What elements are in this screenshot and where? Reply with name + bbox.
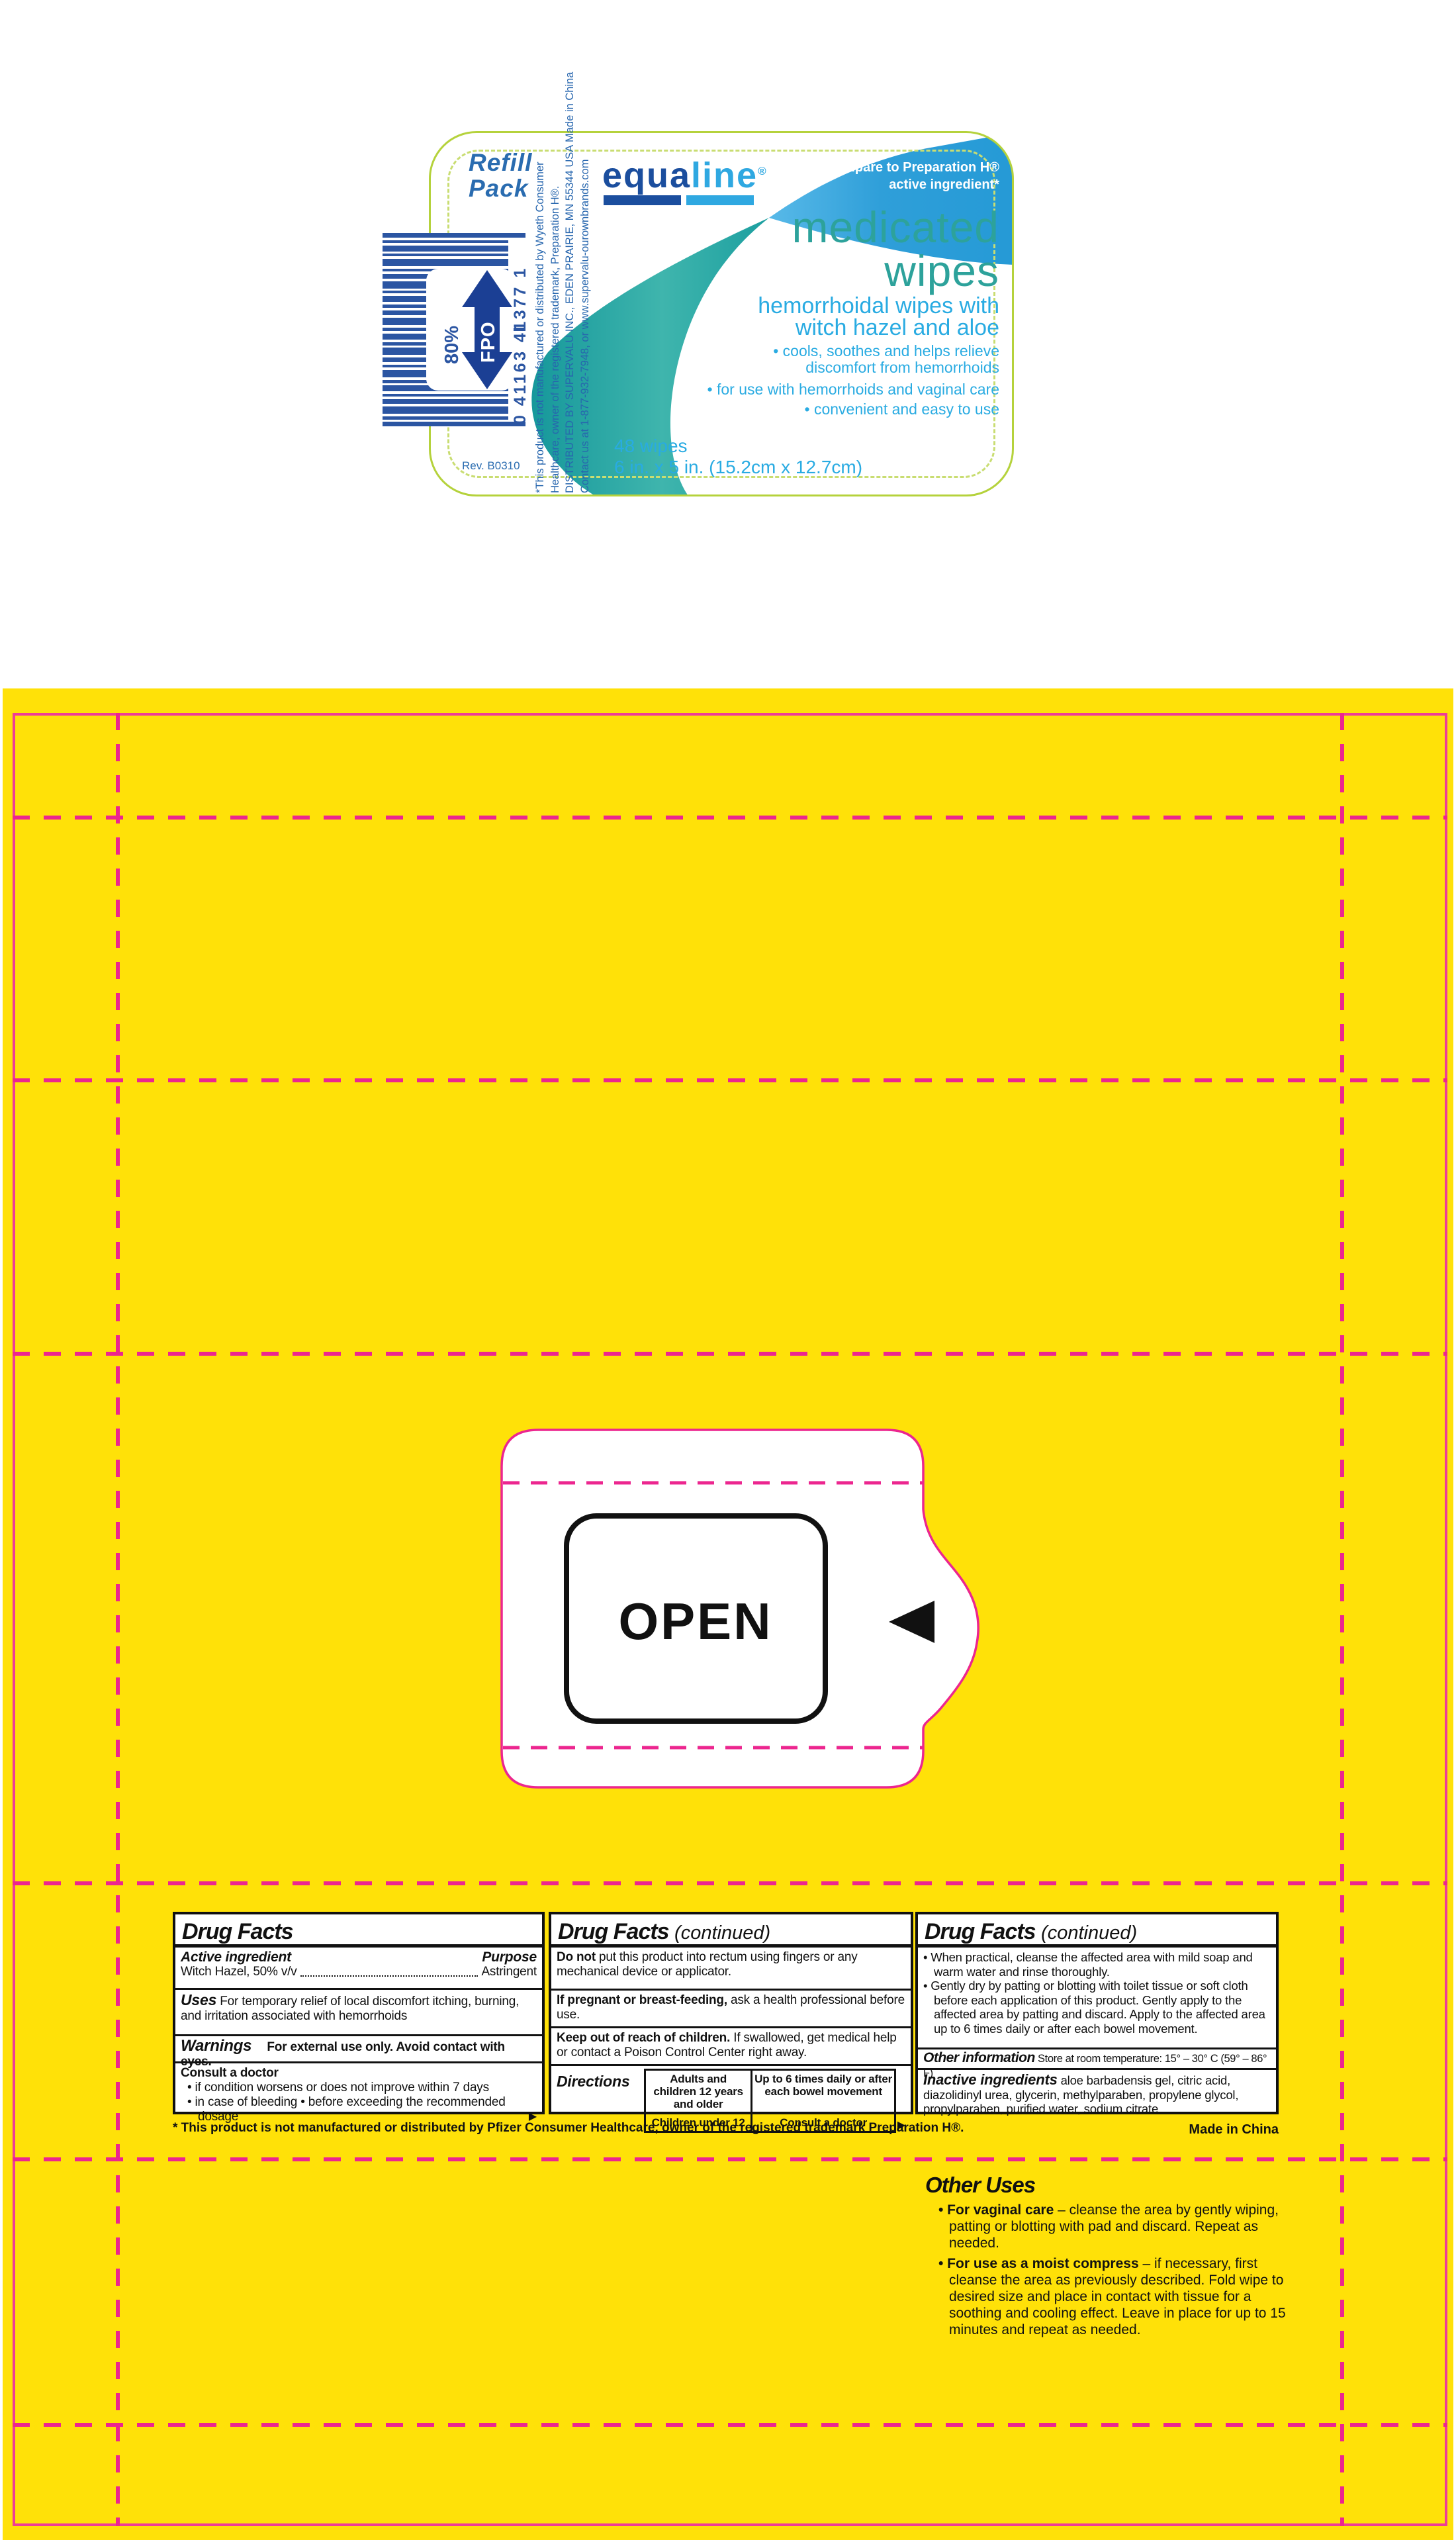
consult-bullet-1: • if condition worsens or does not impro… — [187, 2081, 537, 2095]
brand-underline-dark — [604, 195, 681, 205]
product-title: medicated wipes — [792, 205, 999, 293]
purpose-head: Purpose — [482, 1950, 537, 1965]
product-title-line2: wipes — [792, 249, 999, 293]
active-ingredient-name: Witch Hazel, 50% v/v — [181, 1965, 297, 1979]
warnings-section: Warnings For external use only. Avoid co… — [175, 2036, 542, 2063]
inactive-ingredients-head: Inactive ingredients — [923, 2071, 1058, 2088]
brand-part2: line — [691, 156, 758, 195]
directions-head: Directions — [557, 2069, 644, 2089]
pfizer-footnote: * This product is not manufactured or di… — [173, 2121, 964, 2136]
lid-label: Refill Pack equaline® compare to Prepara… — [429, 131, 1014, 496]
purpose-value: Astringent — [481, 1965, 537, 1979]
directions-row-1: Adults and children 12 years and older U… — [646, 2071, 894, 2114]
benefit-bullet-3: • convenient and easy to use — [805, 401, 999, 417]
compare-line2: active ingredient* — [828, 176, 999, 193]
pregnant-head: If pregnant or breast-feeding, — [557, 1993, 727, 2007]
uses-section: Uses For temporary relief of local disco… — [175, 1990, 542, 2036]
title-text: Drug Facts — [558, 1919, 669, 1944]
benefit-bullet-1a: • cools, soothes and helps relieve — [773, 343, 999, 359]
consult-head: Consult a doctor — [181, 2066, 537, 2081]
brand-underline-light — [686, 195, 754, 205]
pregnant-section: If pregnant or breast-feeding, ask a hea… — [551, 1991, 911, 2028]
other-uses-bullet-1: • For vaginal care – cleanse the area by… — [925, 2202, 1286, 2251]
subtitle-line1: hemorrhoidal wipes with — [758, 295, 999, 317]
barcode-percent: 80% — [441, 326, 463, 364]
drug-facts-panel-3: Drug Facts (continued) • When practical,… — [915, 1912, 1279, 2114]
keep-out-head: Keep out of reach of children. — [557, 2031, 730, 2045]
continued-text: (continued) — [674, 1922, 770, 1944]
vertical-line4: Contact us at 1-877-932-7948, or www.sup… — [578, 139, 593, 493]
fold-line-vertical-left — [116, 713, 120, 2526]
fold-line-4 — [13, 1881, 1447, 1885]
product-subtitle: hemorrhoidal wipes with witch hazel and … — [758, 295, 999, 339]
drug-facts-title-2: Drug Facts (continued) — [551, 1914, 911, 1948]
brand-logo: equaline® — [602, 154, 768, 193]
inactive-ingredients-section: Inactive ingredients aloe barbadensis ge… — [918, 2070, 1276, 2119]
application-steps-section: • When practical, cleanse the affected a… — [918, 1948, 1276, 2049]
fold-line-3 — [13, 1352, 1447, 1356]
warnings-head: Warnings — [181, 2037, 251, 2055]
wipe-size: 6 in. x 5 in. (15.2cm x 12.7cm) — [614, 457, 862, 478]
other-uses-b1-head: • For vaginal care — [938, 2202, 1054, 2218]
compare-line1: compare to Preparation H® — [828, 159, 999, 176]
fold-line-5 — [13, 2157, 1447, 2161]
application-bullet-1: • When practical, cleanse the affected a… — [923, 1950, 1271, 1979]
uses-text: For temporary relief of local discomfort… — [181, 1995, 519, 2023]
drug-facts-title-1: Drug Facts — [175, 1914, 542, 1948]
fold-line-6 — [13, 2423, 1447, 2427]
product-title-line1: medicated — [792, 205, 999, 249]
open-flap: OPEN — [470, 1397, 993, 1827]
consult-bullet-2: • in case of bleeding • before exceeding… — [187, 2095, 516, 2124]
barcode-svg: FPO 80% 0 41163 41377 1 — [383, 233, 529, 426]
directions-cell: Up to 6 times daily or after each bowel … — [752, 2071, 894, 2112]
uses-head: Uses — [181, 1991, 216, 2008]
other-uses-b2-head: • For use as a moist compress — [938, 2256, 1139, 2271]
title-text: Drug Facts — [925, 1919, 1036, 1944]
compare-claim: compare to Preparation H® active ingredi… — [828, 159, 999, 193]
made-in-china: Made in China — [915, 2122, 1279, 2138]
barcode-digits: 0 41163 41377 1 — [511, 266, 529, 424]
other-uses-bullet-2: • For use as a moist compress – if neces… — [925, 2255, 1286, 2338]
wipe-count: 48 wipes — [614, 436, 688, 457]
dotted-leader — [300, 1975, 478, 1977]
benefit-bullet-2: • for use with hemorrhoids and vaginal c… — [707, 381, 999, 397]
continued-text: (continued) — [1041, 1922, 1137, 1944]
fold-line-vertical-right — [1340, 713, 1344, 2526]
other-uses-title: Other Uses — [925, 2173, 1286, 2198]
application-bullet-2: • Gently dry by patting or blotting with… — [923, 1979, 1271, 2036]
drug-facts-panel-2: Drug Facts (continued) Do not put this p… — [549, 1912, 913, 2114]
vertical-line2: Healthcare, owner of the registered trad… — [548, 139, 563, 493]
do-not-section: Do not put this product into rectum usin… — [551, 1948, 911, 1991]
upc-barcode: FPO 80% 0 41163 41377 1 — [383, 233, 529, 426]
do-not-head: Do not — [557, 1950, 596, 1964]
active-ingredient-section: Active ingredient Purpose Witch Hazel, 5… — [175, 1948, 542, 1990]
benefit-bullet-1b: discomfort from hemorrhoids — [805, 359, 999, 375]
do-not-text: put this product into rectum using finge… — [557, 1950, 858, 1979]
other-uses-block: Other Uses • For vaginal care – cleanse … — [925, 2173, 1286, 2338]
brand-part1: equa — [602, 156, 691, 195]
subtitle-line2: witch hazel and aloe — [758, 317, 999, 339]
registered-mark: ® — [758, 165, 768, 177]
regulatory-vertical-text: *This product is not manufactured or dis… — [533, 139, 592, 493]
consult-section: Consult a doctor • if condition worsens … — [175, 2063, 542, 2127]
vertical-line1: *This product is not manufactured or dis… — [533, 139, 548, 493]
drug-facts-panel-1: Drug Facts Active ingredient Purpose Wit… — [173, 1912, 545, 2114]
directions-cell: Adults and children 12 years and older — [646, 2071, 752, 2112]
other-information-head: Other information — [923, 2050, 1035, 2065]
active-ingredient-head: Active ingredient — [181, 1950, 291, 1965]
flap-open-label: OPEN — [618, 1592, 772, 1650]
keep-out-section: Keep out of reach of children. If swallo… — [551, 2028, 911, 2066]
fold-line-1 — [13, 816, 1447, 820]
fold-line-2 — [13, 1078, 1447, 1082]
barcode-fpo-blob — [426, 269, 514, 391]
other-information-section: Other information Store at room temperat… — [918, 2049, 1276, 2070]
barcode-fpo-text: FPO — [478, 321, 499, 363]
vertical-line3: DISTRIBUTED BY SUPERVALU INC., EDEN PRAI… — [563, 139, 578, 493]
revision-code: Rev. B0310 — [462, 459, 520, 473]
drug-facts-title-3: Drug Facts (continued) — [918, 1914, 1276, 1948]
